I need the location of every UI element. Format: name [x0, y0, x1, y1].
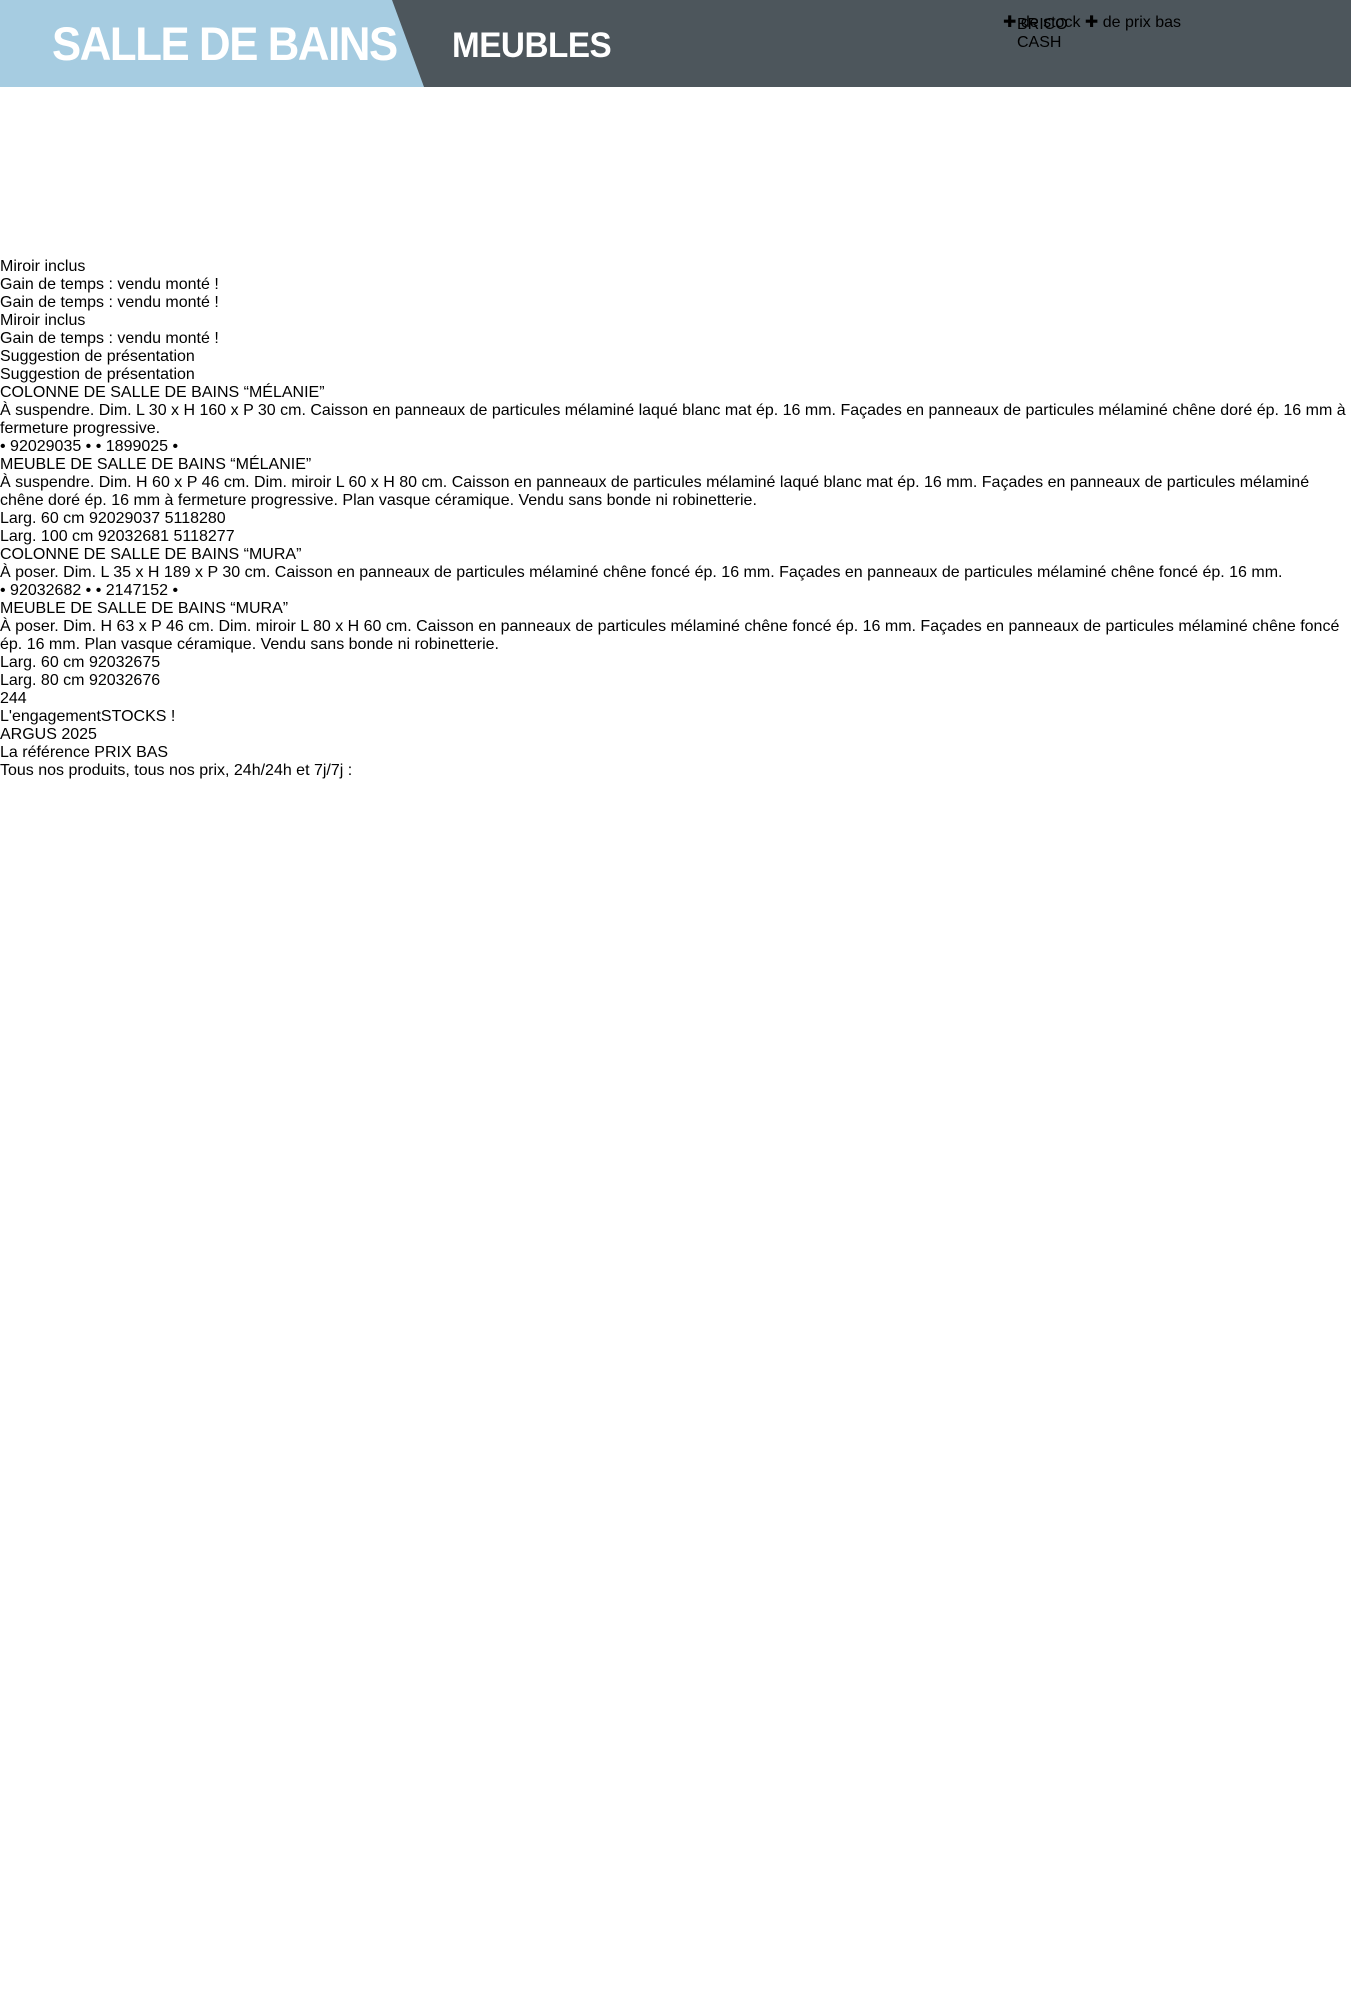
badge-gain-de-temps: Gain de temps : vendu monté ! [0, 294, 1351, 312]
product-description: À suspendre. Dim. H 60 x P 46 cm. Dim. m… [0, 474, 1351, 510]
size-label: Larg. 100 cm [0, 528, 93, 545]
footer-tagline: Tous nos produits, tous nos prix, 24h/24… [0, 762, 1351, 780]
product-title: MEUBLE DE SALLE DE BAINS “MURA” [0, 600, 1351, 618]
engagement-slogan: L'engagementSTOCKS ! [0, 708, 1351, 726]
photo-caption: Suggestion de présentation [0, 366, 1351, 384]
badge-miroir-inclus: Miroir inclus [0, 258, 1351, 276]
floor-shadow [0, 240, 340, 258]
product-code: 92029037 [89, 510, 160, 527]
product-codes: • 92029035 • • 1899025 • [0, 438, 1351, 456]
photo-caption: Suggestion de présentation [0, 348, 1351, 366]
product-title: COLONNE DE SALLE DE BAINS “MURA” [0, 546, 1351, 564]
spec-table-mura: Larg. 60 cm 92032675 Larg. 80 cm 9203267… [0, 654, 1351, 690]
product-description: À suspendre. Dim. L 30 x H 160 x P 30 cm… [0, 402, 1351, 438]
table-row: Larg. 100 cm 92032681 5118277 [0, 528, 1351, 546]
product-colonne-melanie: COLONNE DE SALLE DE BAINS “MÉLANIE” À su… [0, 384, 1351, 456]
engagement-bold: STOCKS ! [101, 708, 175, 725]
size-label: Larg. 80 cm [0, 672, 84, 689]
argus-title: ARGUS 2025 [0, 726, 1351, 744]
product-code: 92032676 [89, 672, 160, 689]
product-photo-mura [0, 36, 1351, 258]
product-ref: 5118280 [165, 510, 226, 527]
cabinet-leg [0, 196, 1351, 240]
catalog-page: SALLE DE BAINS MEUBLES BRICO CASH ✚ de s… [0, 0, 1351, 2000]
badge-gain-de-temps: Gain de temps : vendu monté ! [0, 330, 1351, 348]
product-meuble-melanie: MEUBLE DE SALLE DE BAINS “MÉLANIE” À sus… [0, 456, 1351, 510]
cabinet-leg [0, 36, 1351, 76]
size-label: Larg. 60 cm [0, 654, 84, 671]
product-title: MEUBLE DE SALLE DE BAINS “MÉLANIE” [0, 456, 1351, 474]
spec-table-melanie: Larg. 60 cm 92029037 5118280 Larg. 100 c… [0, 510, 1351, 546]
size-label: Larg. 60 cm [0, 510, 84, 527]
badge-miroir-inclus: Miroir inclus [0, 312, 1351, 330]
cabinet-leg [0, 144, 14, 196]
argus-subtitle: La référence PRIX BAS [0, 744, 1351, 762]
engagement-prefix: L'engagement [0, 708, 101, 725]
argus-panel: ARGUS 2025 La référence PRIX BAS [0, 726, 1351, 762]
badge-gain-de-temps: Gain de temps : vendu monté ! [0, 276, 1351, 294]
table-row: Larg. 60 cm 92029037 5118280 [0, 510, 1351, 528]
logo-brand-line1: BRICO [1017, 16, 1183, 34]
cabinet-leg [0, 92, 14, 144]
table-row: Larg. 60 cm 92032675 [0, 654, 1351, 672]
product-ref: 5118277 [173, 528, 234, 545]
product-colonne-mura: COLONNE DE SALLE DE BAINS “MURA” À poser… [0, 546, 1351, 600]
product-code: 92032675 [89, 654, 160, 671]
product-description: À poser. Dim. H 63 x P 46 cm. Dim. miroi… [0, 618, 1351, 654]
product-description: À poser. Dim. L 35 x H 189 x P 30 cm. Ca… [0, 564, 1351, 582]
plus-icon: ✚ [1003, 14, 1016, 31]
product-codes: • 92032682 • • 2147152 • [0, 582, 1351, 600]
table-row: Larg. 80 cm 92032676 [0, 672, 1351, 690]
page-number: 244 [0, 690, 1351, 708]
product-meuble-mura: MEUBLE DE SALLE DE BAINS “MURA” À poser.… [0, 600, 1351, 654]
product-title: COLONNE DE SALLE DE BAINS “MÉLANIE” [0, 384, 1351, 402]
product-code: 92032681 [98, 528, 169, 545]
